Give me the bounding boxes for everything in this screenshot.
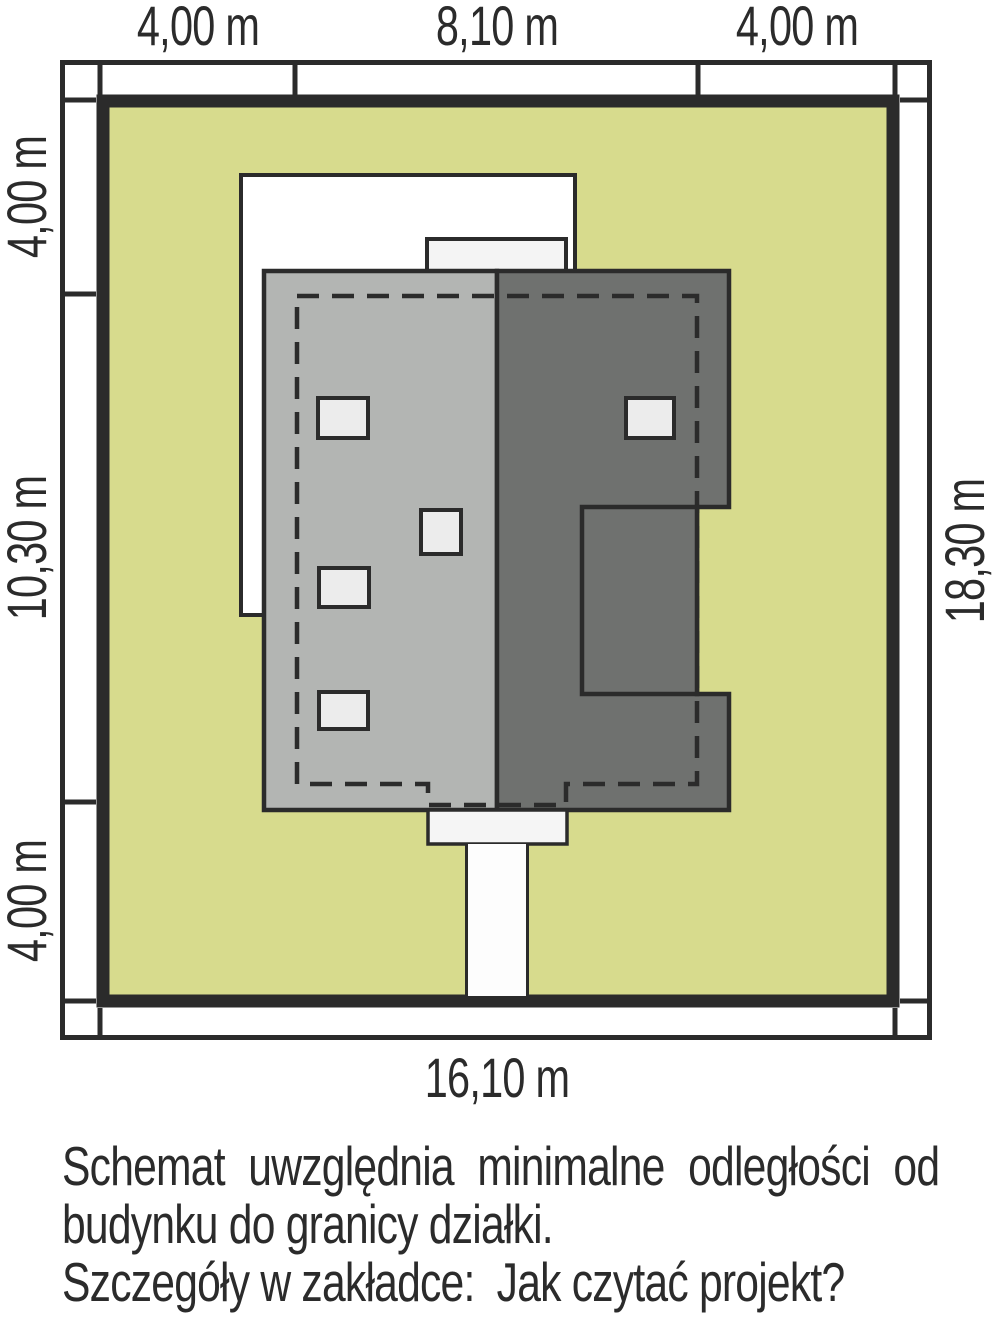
dimension-ticks-top [100,63,895,96]
entrance-canopy [428,810,567,844]
site-plan-scene: 4,00 m 8,10 m 4,00 m 4,00 m 10,30 m 4,00… [0,0,1000,1323]
site-plan-drawing [0,0,1000,1110]
dimension-label-top-right: 4,00 m [716,0,879,52]
dimension-ticks-bottom [100,1008,895,1038]
roof-window-2 [626,398,674,438]
footer-note-line-1: Schemat uwzględnia minimalne odległości … [62,1137,939,1195]
roof-window-3 [421,510,461,554]
dimension-label-right: 18,30 m [937,440,993,662]
footer-note-line-2: budynku do granicy działki. [62,1195,939,1253]
roof-window-1 [318,398,368,438]
dimension-label-left-top: 4,00 m [0,86,55,308]
dimension-label-left-bottom: 4,00 m [0,790,55,1012]
dimension-ticks-right [900,100,930,1001]
entrance-path [466,844,528,996]
dimension-ticks-left [63,100,97,1001]
roof-window-4 [319,568,369,607]
recessed-wall-block [582,507,697,694]
dimension-label-top-left: 4,00 m [117,0,280,52]
dimension-label-left-middle: 10,30 m [0,437,55,659]
dimension-label-top-center: 8,10 m [416,0,579,52]
chimney-block [427,239,566,272]
dimension-label-bottom: 16,10 m [416,1052,579,1104]
roof-window-5 [319,692,368,729]
footer-note-line-3: Szczegóły w zakładce: Jak czytać projekt… [62,1253,939,1311]
